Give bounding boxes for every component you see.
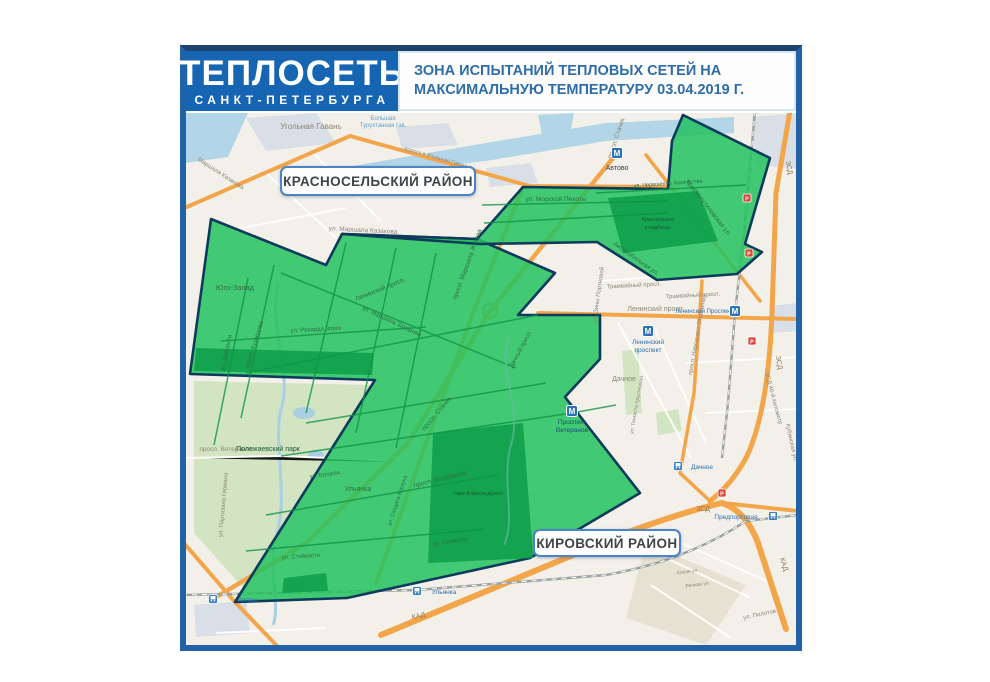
city-map: Угольная ГаваньБольшаяТурухтанная гав.Ма… xyxy=(186,113,796,645)
toll-marker-glyph: Р xyxy=(750,339,754,345)
rail-icon-wheel xyxy=(211,600,213,602)
district-label-krasnoselsky: КРАСНОСЕЛЬСКИЙ РАЙОН xyxy=(280,166,476,196)
rail-icon-wheel xyxy=(418,592,420,594)
metro-icon-glyph: М xyxy=(732,307,739,316)
rail-icon-window xyxy=(676,463,681,467)
teploset-logo: ТЕПЛОСЕТЬ САНКТ-ПЕТЕРБУРГА xyxy=(186,51,398,111)
poster-title-box: ЗОНА ИСПЫТАНИЙ ТЕПЛОВЫХ СЕТЕЙ НА МАКСИМА… xyxy=(398,51,796,111)
rail-station-label: Лигово xyxy=(238,597,259,604)
metro-icon-glyph: М xyxy=(569,407,576,416)
rail-icon-window xyxy=(415,588,420,592)
metro-icon-glyph: М xyxy=(614,149,621,158)
map-label: Ленинский Проспект xyxy=(675,308,733,315)
map-label: Угольная Гавань xyxy=(280,122,342,131)
toll-marker-glyph: Р xyxy=(747,251,751,257)
logo-subtitle: САНКТ-ПЕТЕРБУРГА xyxy=(194,94,389,106)
rail-icon-wheel xyxy=(214,600,216,602)
map-label: Полежаевский парк xyxy=(236,445,301,453)
district-label-kirovsky: КИРОВСКИЙ РАЙОН xyxy=(533,529,681,557)
map-label: проспект xyxy=(634,347,661,354)
map-label: Ленинский xyxy=(632,338,664,346)
rail-station-label: Предпортовая xyxy=(714,514,758,521)
rail-station-label: Дачное xyxy=(691,464,713,471)
rail-icon-window xyxy=(211,596,216,600)
toll-marker-glyph: Р xyxy=(720,491,724,497)
logo-title: ТЕПЛОСЕТЬ xyxy=(179,56,405,91)
toll-marker-glyph: Р xyxy=(745,196,749,202)
map-label: Турухтанная гав. xyxy=(360,123,407,129)
map-label: Красненькое xyxy=(642,217,675,223)
map-label: Дачное xyxy=(612,376,636,383)
map-label: Проспект xyxy=(558,419,586,426)
map-canvas: Угольная ГаваньБольшаяТурухтанная гав.Ма… xyxy=(186,113,796,645)
rail-icon-wheel xyxy=(774,517,776,519)
map-label: Ульянка xyxy=(345,486,372,493)
rail-icon-window xyxy=(771,513,776,517)
heat-test-zone-poster: ТЕПЛОСЕТЬ САНКТ-ПЕТЕРБУРГА ЗОНА ИСПЫТАНИ… xyxy=(180,45,802,651)
poster-page: ТЕПЛОСЕТЬ САНКТ-ПЕТЕРБУРГА ЗОНА ИСПЫТАНИ… xyxy=(0,0,990,682)
poster-header: ТЕПЛОСЕТЬ САНКТ-ПЕТЕРБУРГА ЗОНА ИСПЫТАНИ… xyxy=(186,51,796,113)
rail-station-label: Ульянка xyxy=(432,589,457,596)
map-label: парк Александрино xyxy=(453,491,503,497)
metro-icon-glyph: М xyxy=(645,327,652,336)
map-label: ул. Морской Пехоты xyxy=(526,195,587,203)
map-label: кладбище xyxy=(645,225,671,231)
poster-title: ЗОНА ИСПЫТАНИЙ ТЕПЛОВЫХ СЕТЕЙ НА МАКСИМА… xyxy=(400,62,794,100)
map-label: Большая xyxy=(370,116,395,122)
rail-icon-wheel xyxy=(676,467,678,469)
rail-icon-wheel xyxy=(771,517,773,519)
map-label: Автово xyxy=(606,165,629,172)
map-label: Юго-Запад xyxy=(216,283,255,292)
map-label: Ветеранов xyxy=(556,427,589,434)
rail-icon-wheel xyxy=(679,467,681,469)
map-label: ЗСД xyxy=(696,506,710,513)
rail-icon-wheel xyxy=(415,592,417,594)
